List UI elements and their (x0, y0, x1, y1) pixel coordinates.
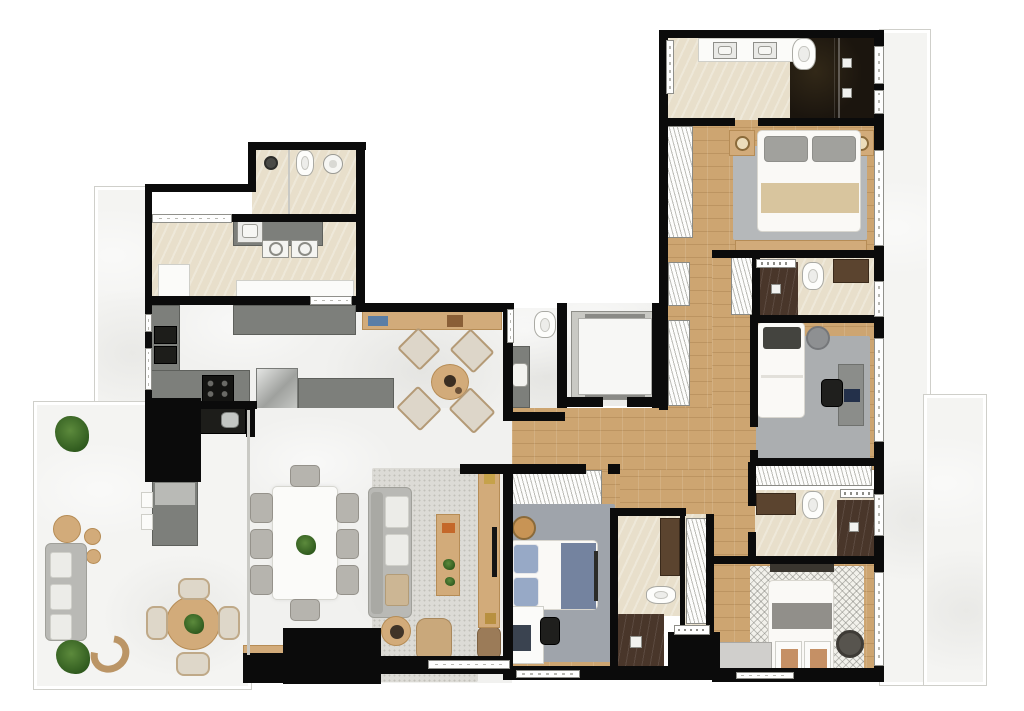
wall (610, 508, 686, 516)
coffee-plant (443, 559, 455, 570)
service-sink (323, 154, 343, 174)
wall (283, 628, 381, 684)
bar-sink (221, 412, 239, 428)
wall (748, 462, 756, 506)
tv-screen (492, 527, 497, 577)
vanity-sink (753, 42, 777, 59)
shower-fixture (264, 156, 278, 170)
terrace-right-wide (927, 398, 983, 682)
shower-head (849, 522, 859, 532)
double-vanity (698, 38, 804, 62)
bath2-shower (618, 614, 664, 668)
terrace-chair (218, 606, 240, 640)
shower-head (842, 88, 852, 98)
shower-head (842, 58, 852, 68)
bedroom3-chair (821, 379, 843, 407)
wall (608, 464, 620, 474)
lavabo-sink (512, 363, 528, 387)
living-sofa (368, 487, 412, 618)
terrace-grill-counter (152, 480, 198, 546)
bedroom4-bed (768, 580, 834, 678)
vanity-sink (713, 42, 737, 59)
dining-table (272, 486, 338, 600)
lamp (735, 136, 750, 151)
dining-chair (250, 493, 273, 523)
master-bed (757, 130, 861, 232)
wall (712, 556, 882, 564)
tv-decor (485, 613, 496, 624)
coffee-book (442, 523, 455, 533)
pillow (812, 136, 856, 162)
blanket-beige (761, 183, 859, 213)
elevator-door (585, 314, 645, 318)
glass-door (247, 410, 250, 655)
window (152, 214, 232, 223)
master-closet (665, 126, 693, 238)
coffee-table (436, 514, 460, 596)
bath3-shower (756, 262, 798, 316)
console-table (362, 311, 502, 330)
bath2-vanity (660, 518, 680, 576)
pillow-blue (513, 544, 539, 574)
shower-glass (288, 146, 290, 218)
window (736, 672, 794, 679)
kitchen-counter-top (233, 305, 356, 335)
oven-stack (154, 346, 177, 364)
service-toilet (296, 150, 314, 176)
sheet-fold (761, 375, 803, 378)
wall (668, 632, 720, 680)
bath4-toilet (802, 491, 824, 519)
pillow-dark (763, 327, 801, 349)
pillow (764, 136, 808, 162)
corridor-closet (731, 255, 753, 315)
terrace-side-table-small (86, 549, 101, 564)
sofa-cushion (50, 584, 72, 610)
terrace-chair (178, 578, 210, 600)
bath3-toilet (802, 262, 824, 290)
window (874, 572, 884, 666)
terrace-plant-top (55, 416, 89, 452)
window (310, 296, 352, 305)
table-decor (444, 375, 456, 387)
wall (659, 30, 883, 38)
terrace-stool (141, 492, 153, 508)
terrace-side-left (98, 190, 147, 408)
window (874, 494, 884, 536)
washer (262, 240, 289, 258)
lounge-pouf (477, 626, 501, 660)
oven-stack (154, 326, 177, 344)
wall (356, 142, 365, 305)
sofa-cushion (385, 496, 409, 528)
table-decor (455, 387, 462, 394)
wall (565, 397, 603, 407)
private-elevator (571, 311, 657, 400)
corridor-closet (668, 262, 690, 306)
blanket-gray (772, 603, 832, 629)
dining-chair (250, 565, 273, 595)
bath4-vanity (756, 493, 796, 515)
terrace-plant-bottom (56, 640, 90, 674)
terrace-side-table-small (84, 528, 101, 545)
washer (291, 240, 318, 258)
window (428, 660, 510, 669)
dining-chair (290, 599, 320, 621)
wall (145, 398, 201, 482)
wall (460, 464, 586, 474)
shower-head (771, 284, 781, 294)
bed-runner (594, 551, 598, 601)
label-strip (756, 259, 796, 268)
bedroom2-chair (540, 617, 560, 645)
centerpiece-plant (296, 535, 316, 555)
table-plant (184, 614, 204, 634)
lavabo-toilet (534, 311, 556, 338)
bar-counter (198, 406, 246, 434)
bath2-toilet (646, 586, 676, 604)
floorplan-canvas (0, 0, 1024, 711)
bath3-vanity (833, 259, 869, 283)
window (874, 46, 884, 84)
dining-chair (250, 529, 273, 559)
bedroom3-pouf (806, 326, 830, 350)
wall (145, 296, 312, 305)
wall (750, 323, 758, 427)
dining-chair (290, 465, 320, 487)
window (145, 314, 152, 332)
sofa-cushion (385, 534, 409, 566)
wall (680, 516, 685, 628)
wall (503, 412, 565, 421)
wall (750, 315, 882, 323)
dining-chair (336, 493, 359, 523)
bath4-shower (837, 500, 875, 556)
dining-chair (336, 565, 359, 595)
label-strip (840, 489, 874, 498)
refrigerator (256, 368, 298, 410)
wall (659, 118, 735, 126)
blanket-blue (561, 543, 596, 609)
wall (557, 303, 567, 408)
wall (627, 397, 663, 407)
window (874, 90, 884, 114)
label-strip (674, 625, 710, 635)
private-elevator-cab (578, 318, 652, 395)
window (507, 309, 514, 343)
bedroom2-bed (510, 540, 598, 610)
nightstand (729, 130, 755, 156)
laundry-sink (237, 219, 263, 243)
wall (248, 142, 366, 150)
bedroom2-desk (508, 606, 544, 664)
window (874, 150, 884, 246)
side-table (381, 616, 411, 646)
coffee-plant (445, 577, 455, 586)
terrace-side-table (53, 515, 81, 543)
terrace-sofa (45, 543, 87, 641)
wall (712, 250, 882, 258)
bedroom4-bench (770, 564, 834, 572)
window (874, 281, 884, 317)
laptop (844, 389, 860, 402)
tv-decor (484, 474, 495, 484)
side-table-tray (390, 625, 404, 639)
grill-top (155, 483, 195, 505)
terrace-chair (176, 652, 210, 676)
terrace-right-strip (883, 33, 927, 682)
master-toilet (792, 38, 816, 70)
bedroom4-pouf (836, 630, 864, 658)
terrace-chair (146, 606, 168, 640)
tv-panel (478, 468, 500, 628)
bath-divider (838, 38, 840, 122)
kitchen-island (298, 378, 394, 410)
cooktop (202, 375, 234, 402)
wall (503, 464, 513, 670)
shower-head (630, 636, 642, 648)
bedroom2-pouf (512, 516, 536, 540)
wall (758, 118, 882, 126)
dining-chair (336, 529, 359, 559)
wall (145, 184, 256, 192)
window (874, 338, 884, 442)
window (666, 40, 674, 94)
terrace-dining-table (166, 596, 220, 650)
sofa-back (371, 492, 383, 614)
corridor-closet (668, 320, 690, 406)
sofa-cushion (50, 552, 72, 578)
wall (230, 214, 364, 222)
wall (750, 458, 882, 466)
sofa-cushion (385, 574, 409, 606)
sofa-cushion (50, 614, 72, 640)
window (516, 670, 580, 678)
terrace-stool (141, 514, 153, 530)
bedroom3-bed (757, 322, 805, 418)
wall (356, 303, 514, 312)
wall (610, 508, 618, 670)
desktop-pc (513, 625, 531, 651)
pillow-blue (513, 577, 539, 607)
console-decor-box (447, 315, 463, 327)
console-decor-blue (368, 316, 388, 326)
bedroom2-closet (508, 470, 602, 506)
window (145, 348, 152, 390)
